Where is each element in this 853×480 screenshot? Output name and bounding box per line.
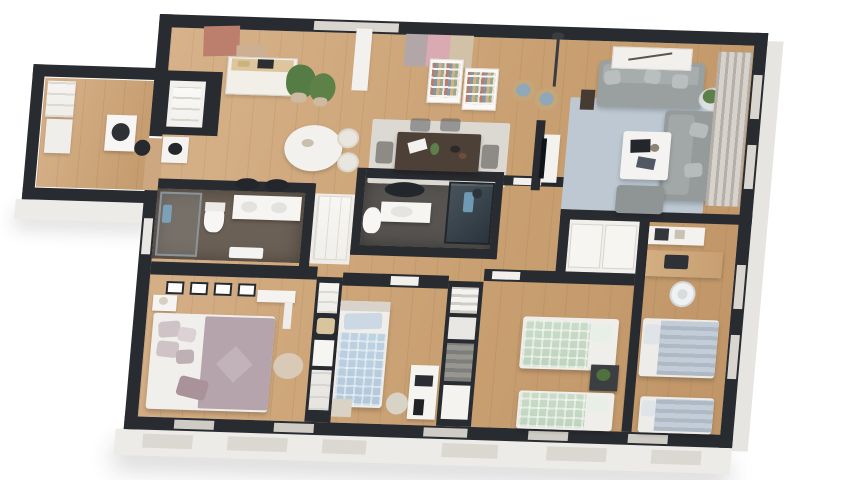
bed4-blanket-stripes [656,321,719,377]
facade-recess [227,436,288,452]
dining-chair-gray [375,141,394,164]
sideboard-appliance [257,59,274,69]
bed2-blanket-plaid [334,333,386,406]
laundry-shelf [44,119,73,154]
sofa-pillow [643,69,661,85]
wall-bottom-slab [174,420,215,430]
facade-recess [651,450,702,466]
laundry-shelf [45,81,76,118]
wall-bottom-slab [423,427,468,437]
picture-frame [166,281,185,295]
office-box [674,230,685,239]
picture-frame [189,282,208,296]
wardrobe-shelf-clothes [441,385,471,420]
bookshelf-books [465,72,496,105]
storage-clock [316,318,335,335]
wall-bottom-slab [273,423,314,433]
floor-lamp-head [552,32,565,39]
walkin-shower-dark [444,182,495,245]
toilet-tank [205,202,226,212]
bed2-bench [331,398,353,417]
dining-chair-clear [410,118,431,132]
bedroom2-door-slab [390,276,419,286]
mid-wardrobe-doors [313,195,353,260]
closet-door [568,224,604,269]
entry-niche-shelf [171,87,202,122]
bed2-pillow [344,313,383,330]
wall-art-terracotta [203,26,240,57]
desk2-monitor [414,375,433,387]
bath-mat [229,247,264,259]
laptop [664,255,689,270]
sofa-pillow [604,70,621,86]
wall-bottom-slab [627,434,668,444]
office-printer [654,228,669,240]
picture-frame [237,283,256,297]
wardrobe-shelf-clothes [444,343,474,382]
ottoman [615,185,665,215]
floorplan-canvas [0,0,853,480]
apartment-building [0,0,853,480]
plant-pot [290,92,307,103]
bed3b-blanket-plaid [518,392,587,428]
bed-pillow [176,349,194,364]
facade-recess [322,439,367,454]
storage-shelf-box [317,283,340,314]
wall-shelf-desk [257,290,296,303]
storage-shelf-box [312,340,334,367]
bed3b-pillow [587,397,608,414]
dining-chair-clear [440,118,461,132]
chaise-pillow [684,163,702,178]
facade-recess [142,434,193,450]
dining-chair-gray [480,144,499,169]
storage-shelf-box [308,370,331,411]
magazine-rack [580,89,596,109]
coffee-table-books [630,139,650,153]
branch-wall-art [611,46,693,71]
bed4-pillow [643,324,661,345]
wall-bottom-slab [528,431,569,441]
bed4b-blanket-stripes [654,399,715,433]
sofa-pillow [672,74,689,89]
shower-towel-blue [162,205,173,223]
bed3-blanket-plaid [521,320,591,368]
sideboard-jars [237,61,249,67]
closet-door [602,225,638,270]
shower-glass [155,192,202,257]
plant-pot [313,97,328,106]
bookshelf-books [430,63,461,98]
facade-recess [546,446,607,462]
facade-recess [441,443,498,459]
bed-pillow [177,326,198,343]
wardrobe-shelf-clothes [450,287,479,314]
bed3-pillow [591,324,613,343]
bedroom3-door-slab [492,271,521,280]
desk2-pc-tower [413,399,424,415]
bed4b-pillow [641,400,656,416]
picture-frame [213,282,232,296]
bed2-headboard [340,300,391,312]
wardrobe-shelf-clothes [448,317,477,340]
